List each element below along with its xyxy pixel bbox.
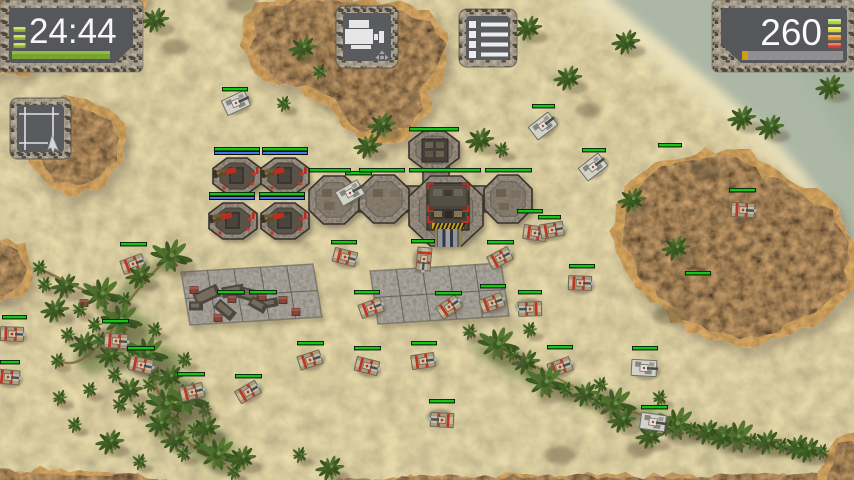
svg-text:24:44: 24:44 xyxy=(29,12,117,51)
svg-text:260: 260 xyxy=(760,12,822,53)
